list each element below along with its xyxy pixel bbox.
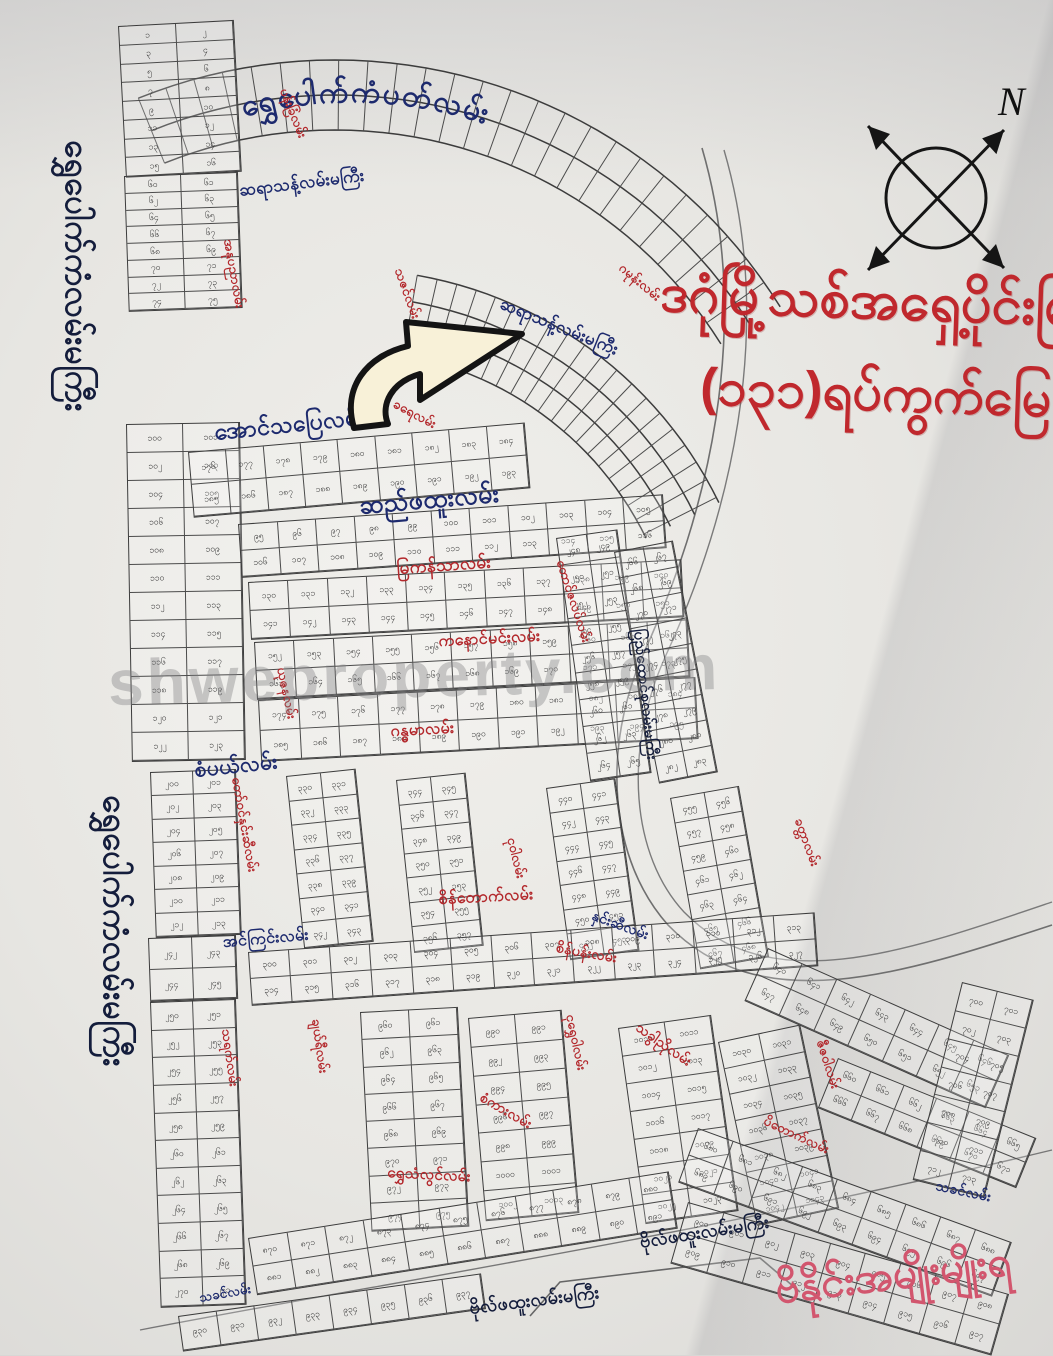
plot-cell: ၉၆၁ [409, 1008, 458, 1038]
plot-cell: ၉၃၅ [367, 1285, 409, 1324]
plot-cell: ၃၂၅ [695, 945, 737, 974]
plot-cell: ၁၁၀ [129, 564, 185, 593]
plot-cell: ၁၃၂ [327, 577, 368, 607]
plot-cell: ၁၀၈ [318, 543, 358, 572]
plot-cell: ၉၅ [239, 522, 279, 551]
plot-cell: ၂၈၃ [683, 746, 716, 777]
plot-cell: ၉၆၅ [412, 1062, 461, 1092]
plot-cell: ၃၃၀ [287, 773, 323, 801]
plot-cell: ၉၃၀ [179, 1312, 221, 1351]
plot-cell: ၈၈၈ [520, 1218, 562, 1252]
plot-cell: ၁၃၁ [288, 579, 329, 609]
plot-cell: ၃၃၇ [329, 843, 365, 871]
plot-cell: ၂၅၉ [197, 1110, 240, 1139]
plot-cell: ၃၄၅ [431, 774, 467, 802]
plot-cell: ၁၀၈ [129, 536, 185, 565]
plot-cell: ၂၅၆ [154, 1084, 197, 1113]
plot-cell: ၁၀၉ [356, 540, 396, 569]
plot-cell: ၂၅၁ [193, 1000, 236, 1029]
street-label: ဂန္ဓမာလမ်း [390, 717, 455, 744]
plot-cell: ၁၈၇ [266, 475, 306, 510]
plot-cell: ၁၀၀၁ [527, 1155, 575, 1188]
plot-cell: ၂၆၁ [198, 1138, 241, 1167]
plot-cell: ၁၀၀၀ [482, 1159, 530, 1192]
plot-cell: ၂၅၇ [196, 1083, 239, 1112]
plot-cell: ၉၉၀ [469, 1015, 517, 1048]
plot-cell: ၁၄၂ [290, 607, 331, 637]
plot-cell: ၂၇၀ [161, 1278, 204, 1307]
plot-cell: ၃၁၈ [412, 965, 454, 994]
plot-cell: ၃၄၃ [336, 916, 372, 944]
plot-cell: ၃၀၄ [410, 939, 452, 968]
plot-cell: ၂၆၄ [587, 749, 620, 780]
plot-cell: ၉၃၃ [292, 1296, 334, 1335]
plot-cell: ၁၀၄ [585, 498, 625, 527]
plot-cell: ၉၆၃ [410, 1035, 459, 1065]
plot-cell: ၁၄၅ [407, 601, 448, 631]
plot-cell: ၂၁၀ [155, 889, 198, 914]
plot-cell: ၂၆၅ [200, 1193, 243, 1222]
plot-cell: ၂၆၂ [157, 1167, 200, 1196]
plot-cell: ၉၃၁ [217, 1306, 259, 1345]
plot-cell: ၃၁၇ [372, 968, 414, 997]
plot-cell: ၂၅၄ [153, 1057, 196, 1086]
street-label: စိန်တောက်လမ်း [438, 883, 534, 912]
location-arrow-shape [351, 322, 522, 428]
plot-cell: ၈၈၇ [482, 1224, 524, 1258]
plot-cell: ၉၆၉ [415, 1117, 464, 1147]
plot-cell: ၁၄၁ [251, 609, 292, 639]
plot-cell: ၃၂၀ [493, 959, 535, 988]
plot-cell: ၃၁၁ [693, 919, 735, 948]
plot-cell: ၉၆၇ [413, 1090, 462, 1120]
plot-cell: ၂၄၂ [149, 937, 193, 969]
plot-cell: ၂၀၄ [153, 818, 196, 843]
plot-cell: ၃၁၄ [251, 976, 293, 1005]
plot-cell: ၁၄၄ [368, 603, 409, 633]
plot-cell: ၃၅၁ [439, 847, 475, 875]
plot-cell: ၃၁၉ [453, 962, 495, 991]
plot-cell: ၂၀၀ [151, 771, 194, 796]
plot-cell: ၁၀၄ [128, 480, 184, 509]
plot-cell: ၃၀၁ [289, 947, 331, 976]
plot-cell: ၂၆၉ [202, 1249, 245, 1278]
plot-cell: ၁၀၂ [508, 503, 548, 532]
plot-cell: ၁၈၆ [300, 727, 341, 759]
street-label: ရွှေသံလွင်လမ်း [387, 1163, 471, 1189]
plot-cell: ၃၄၉ [436, 823, 472, 851]
plot-cell: ၁၈၇ [340, 725, 381, 757]
plot-cell: ၂၆၀ [156, 1140, 199, 1169]
location-arrow [338, 272, 548, 442]
plot-cell: ၂၆၈ [160, 1250, 203, 1279]
plot-cell: ၁၀၅ [624, 495, 664, 524]
plot-cell: ၃၀၀ [249, 950, 291, 979]
plot-cell: ၂၀၆ [153, 842, 196, 867]
plot-cell: ၁၄၃ [329, 605, 370, 635]
plot-cell: ၉၉၅ [520, 1068, 568, 1101]
plot-cell: ၁၄၈ [525, 594, 566, 624]
plot-cell: ၃၀၃ [370, 942, 412, 971]
plot-cell: ၂၀၂ [152, 795, 195, 820]
plot-cell: ၃၁၅ [291, 973, 333, 1002]
plot-cell: ၃၄၇ [433, 798, 469, 826]
plot-cell: ၃၁၂ [733, 916, 775, 945]
plot-cell: ၂၅၂ [152, 1029, 195, 1058]
plot-cell: ၃၂၃ [614, 951, 656, 980]
plot-cell: ၂၆၃ [199, 1166, 242, 1195]
plot-cell: ၁၇၉ [301, 440, 341, 475]
plot-cell: ၁၉၀ [459, 718, 500, 750]
plot-cell: ၁၈၅ [192, 482, 232, 517]
plot-cell: ၂၄၄ [150, 968, 194, 1000]
plot-cell: ၁၀၆ [241, 548, 281, 577]
plot-cell: ၈၈၄ [368, 1242, 410, 1276]
plot-cell: ၉၉၂ [472, 1044, 520, 1077]
plot-cell: ၁၈၈ [303, 472, 343, 507]
plot-cell: ၉၃၆ [405, 1280, 447, 1319]
map-photo: { "header": { "title_line1": "ဒဂုံမြို့သ… [0, 0, 1053, 1355]
plot-cell: ၂၀၇ [195, 840, 238, 865]
plot-cell: ၁၂၂ [132, 732, 188, 761]
plot-cell: ၃၄၄ [397, 777, 433, 805]
plot-cell: ၁၀၂ [128, 452, 184, 481]
plot-cell: ၃၄၈ [402, 826, 438, 854]
plot-cell: ၃၃၁ [321, 770, 357, 798]
plot-cell: ၂၆၇ [201, 1221, 244, 1250]
plot-cell: ၂၄၅ [193, 967, 237, 999]
plot-cell: ၃၀၆ [491, 933, 533, 962]
plot-cell: ၃၃၄ [292, 822, 328, 850]
plot-cell: ၁၀၃ [547, 501, 587, 530]
plot-cell: ၁၁၃ [186, 591, 242, 620]
plot-cell: ၁၁၃ [510, 529, 550, 558]
plot-cell: ၂၆၄ [158, 1195, 201, 1224]
plot-cell: ၁၀၆ [128, 508, 184, 537]
plot-cell: ၃၄၆ [400, 802, 436, 830]
plot-cell: ၃၄၁ [334, 892, 370, 920]
plot-cell: ၈၉၀ [596, 1206, 638, 1240]
plot-cell: ၁၇၇ [226, 446, 266, 481]
plot-cell: ၁၈၆ [229, 478, 269, 513]
plot-cell: ၁၉၂ [538, 714, 579, 746]
street-label: ရွှေပေါက်ကံလမ်းမကြီး [49, 140, 98, 412]
plot-cell: ၁၀၇ [279, 545, 319, 574]
plot-cell: ၃၃၅ [326, 819, 362, 847]
plot-cell: ၂၀၅ [195, 817, 238, 842]
plot-cell: ၃၁၆ [332, 970, 374, 999]
plot-cell: ၈၈၁ [254, 1260, 296, 1294]
plot-cell: ၉၉၃ [517, 1040, 565, 1073]
plot-cell: ၃၀၅ [451, 936, 493, 965]
compass-north-label: N [998, 78, 1025, 125]
plot-cell: ၂၆၆ [159, 1222, 202, 1251]
plot-cell: ၈၈၅ [406, 1236, 448, 1270]
plot-cell: ၉၃၂ [254, 1301, 296, 1340]
plot-cell: ၂၀၉ [196, 864, 239, 889]
plot-cell: ၁၄၇ [486, 597, 527, 627]
plot-cell: ၃၃၉ [331, 868, 367, 896]
plot-cell: ၃၅၀ [405, 851, 441, 879]
plot-cell: ၈၈၉ [558, 1212, 600, 1246]
plot-cell: ၉၆၄ [364, 1065, 413, 1095]
plot-cell: ၃၁၃ [773, 913, 815, 942]
plot-cell: ၈၈၂ [292, 1254, 334, 1288]
plot-cell: ၈၈၃ [330, 1248, 372, 1282]
plot-cell: ၃၃၃ [323, 794, 359, 822]
plot-cell: ၂၆၂ [584, 723, 617, 754]
plot-cell: ၉၇ [316, 517, 356, 546]
plot-cell: ၉၉၈ [479, 1130, 527, 1163]
plot-cell: ၁၀၉ [185, 535, 241, 564]
plot-cell: ၂၀၈ [154, 865, 197, 890]
plot-cell: ၉၃၄ [330, 1290, 372, 1329]
plot-cell: ၁၁၁ [185, 563, 241, 592]
plot-cell: ၃၃၈ [297, 871, 333, 899]
plot-cell: ၉၆၂ [362, 1038, 411, 1068]
plot-block: ၉၆၀၉၆၁၉၆၂၉၆၃၉၆၄၉၆၅၉၆၆၉၆၇၉၆၈၉၆၉၉၇၀၉၇၁၉၇၂၉… [360, 1007, 469, 1232]
plot-cell: ၁၉၁ [498, 716, 539, 748]
plot-cell: ၉၆၀ [361, 1010, 410, 1040]
plot-cell: ၁၇၈ [263, 443, 303, 478]
plot-cell: ၉၉၉ [525, 1126, 573, 1159]
plot-cell: ၉၆၆ [365, 1092, 414, 1122]
plot-cell: ၈၈၆ [444, 1230, 486, 1264]
map-title-line2: (၁၃၁)ရပ်ကွက်မြေ [699, 354, 1053, 442]
plot-cell: ၃၁၀ [652, 922, 694, 951]
plot-cell: ၁၄၆ [447, 599, 488, 629]
plot-cell: ၁၃၀ [249, 581, 290, 611]
plot-cell: ၉၆ [278, 520, 318, 549]
plot-cell: ၃၃၆ [295, 847, 331, 875]
plot-cell: ၂၁၁ [197, 887, 240, 912]
plot-cell: ၁၀၀ [127, 424, 183, 453]
plot-cell: ၉၉၁ [515, 1011, 563, 1044]
map-title-line1: ဒဂုံမြို့သစ်အရှေ့ပိုင်းမြ [659, 259, 1053, 352]
plot-cell: ၂၅၀ [151, 1001, 194, 1030]
plot-cell: ၃၃၂ [290, 798, 326, 826]
plot-cell: ၂၅၈ [155, 1112, 198, 1141]
plot-cell: ၃၄၀ [300, 896, 336, 924]
plot-cell: ၁၁၂ [130, 592, 186, 621]
street-label: ရွှေပေါက်ကံလမ်းမကြီး [87, 795, 136, 1067]
plot-cell: ၃၂၄ [654, 948, 696, 977]
plot-cell: ၃၀၂ [330, 944, 372, 973]
plot-cell: ၂၁၂ [156, 912, 199, 937]
plot-cell: ၉၆၈ [367, 1119, 416, 1149]
plot-cell: ၁၇၆ [189, 450, 229, 485]
